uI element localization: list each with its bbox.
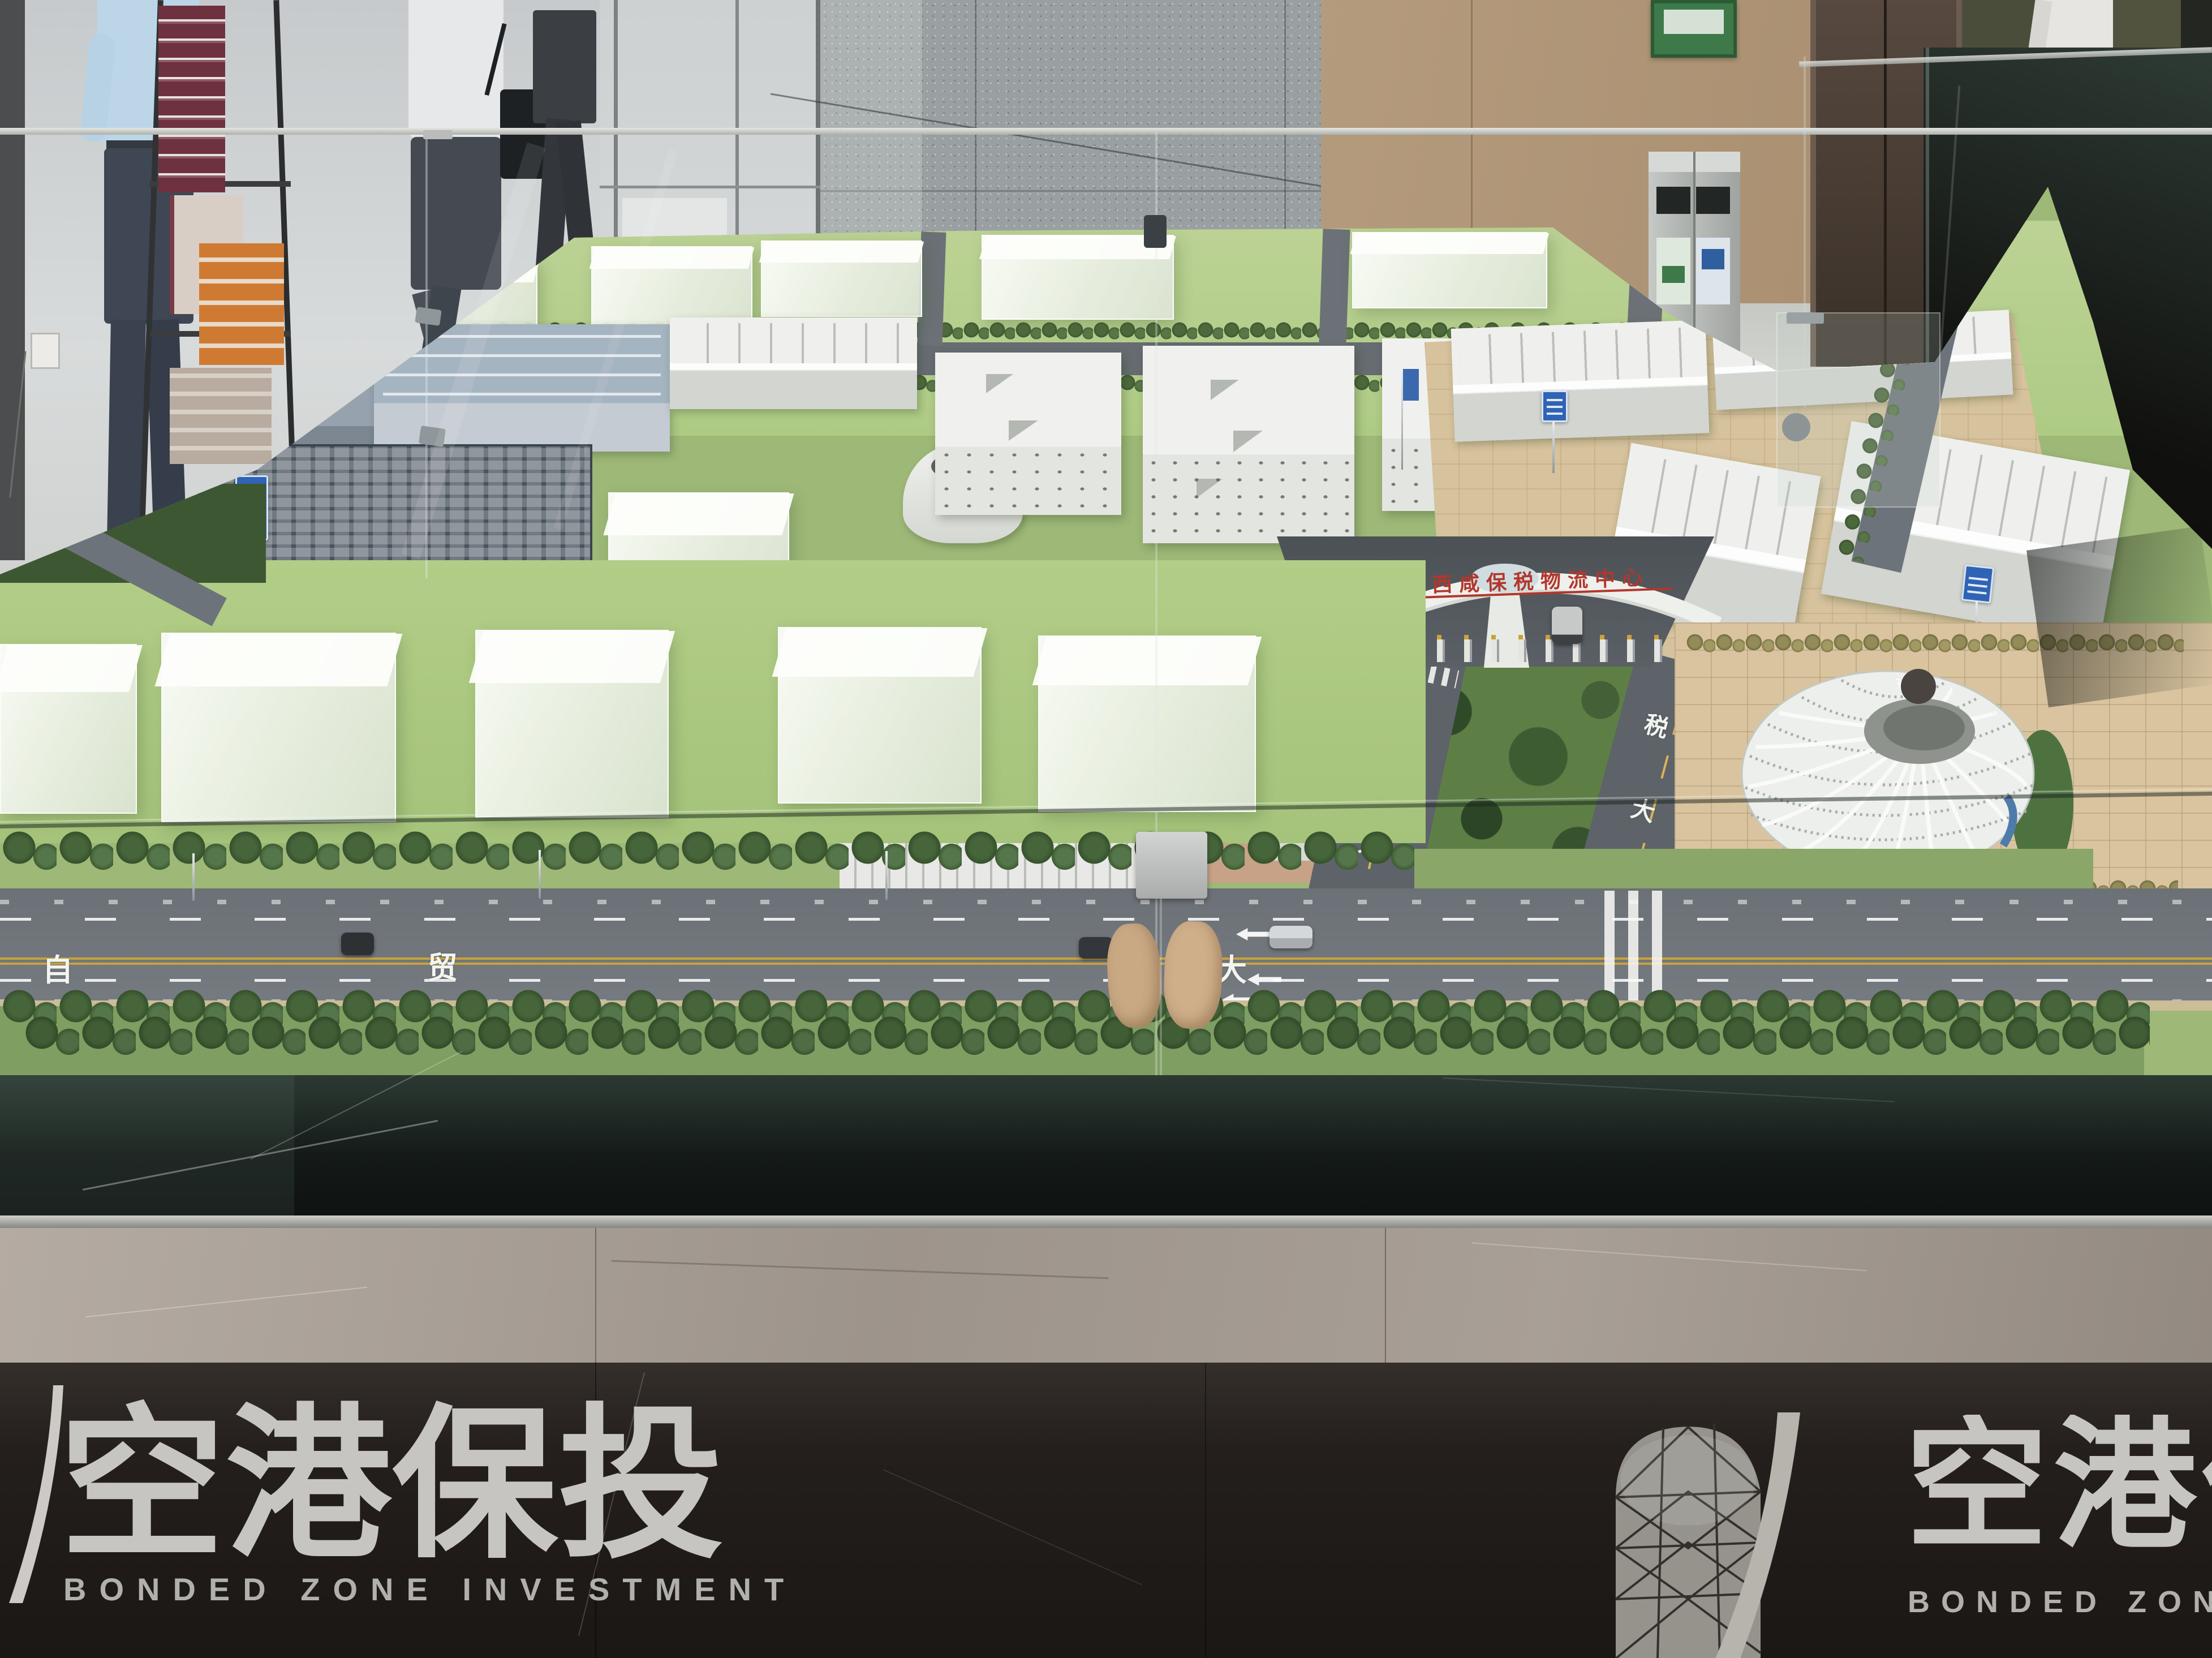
window-dots	[1143, 454, 1354, 543]
bin-opening	[1656, 187, 1690, 214]
table-edge-metal	[0, 1215, 2212, 1229]
person-shirt	[408, 0, 503, 143]
pillar-joint	[975, 0, 976, 243]
pillar-joint	[1284, 0, 1286, 243]
frosted-box	[591, 246, 752, 325]
elevator-seam	[1884, 0, 1887, 367]
tree-row-mid	[0, 825, 1414, 893]
marble-seam	[595, 1228, 596, 1364]
bin-label-blue	[1696, 238, 1730, 304]
glass-shadow-band	[0, 1075, 2212, 1221]
frosted-box	[475, 630, 669, 818]
warehouse-white	[670, 317, 917, 409]
logo-en-right-clip: BONDED ZONE INVESTMENT	[1908, 1584, 2212, 1624]
road-sign-blue	[1961, 564, 1994, 603]
street-light	[539, 850, 541, 899]
pillar-sheen	[820, 0, 922, 243]
logo-cn-left: 空港保投	[59, 1402, 725, 1567]
rack-brochures-maroon	[158, 6, 225, 192]
logo-cn-right-clip: 空港保	[1905, 1415, 2212, 1584]
case-front: 空港保投 BONDED ZONE INVESTMENT 空港保 BON	[0, 1075, 2212, 1658]
person-hips	[411, 137, 501, 290]
logo-en-right: BONDED ZONE INVESTMENT	[1908, 1584, 2212, 1620]
tree-row-front	[23, 1010, 2150, 1084]
bin-opening	[1696, 187, 1730, 214]
frosted-box	[1352, 232, 1547, 308]
band-glow	[0, 1075, 294, 1221]
roof-notch	[986, 374, 1013, 393]
green-wall-sign	[1651, 0, 1737, 58]
rack-brochures-orange	[199, 243, 284, 365]
frosted-box	[0, 644, 137, 814]
logo-en-left: BONDED ZONE INVESTMENT	[63, 1571, 797, 1608]
frosted-box	[778, 627, 982, 804]
reflection-streak	[1443, 1077, 1895, 1102]
rack-brochures-lower	[170, 368, 272, 464]
frosted-box	[1038, 635, 1256, 812]
frosted-box	[982, 235, 1174, 320]
frosted-box	[161, 633, 396, 822]
window-dots	[935, 446, 1121, 515]
car-silver	[1269, 926, 1312, 948]
car-dark	[341, 933, 374, 955]
frosted-box	[761, 240, 922, 317]
blue-flag	[1403, 369, 1419, 401]
white-block	[935, 353, 1121, 515]
green-verge	[1414, 849, 2093, 894]
bin-label-mark	[1662, 266, 1685, 283]
road-label-char: 大	[1628, 789, 1659, 829]
roof-notch	[1211, 380, 1239, 400]
roof-notch	[1233, 431, 1263, 452]
road-label-char: 贸	[427, 943, 458, 987]
marble-vein	[611, 1260, 1109, 1279]
marble-vein-light	[1471, 1243, 1866, 1272]
lane-arrow	[1236, 928, 1270, 940]
road-sign-blue	[1542, 390, 1568, 422]
atrium-transom	[600, 186, 826, 188]
road-text-specks	[0, 900, 2212, 904]
umbrella	[1901, 669, 1936, 704]
lobby-photo: 保 税 大 道 税 大 道 陕西西咸保税物流中心	[0, 0, 2212, 1658]
white-block	[1143, 346, 1354, 543]
base-seam	[1205, 1363, 1206, 1658]
lane-dashes	[0, 979, 2212, 982]
marble-vein-light	[85, 1287, 367, 1317]
logo-cn-right: 空港保	[1905, 1415, 2212, 1557]
sign-pole	[1552, 422, 1555, 473]
marble-band	[0, 1228, 2212, 1364]
bin-label-mark	[1702, 249, 1724, 269]
truck-gray	[1552, 607, 1582, 644]
granite-pillar	[820, 0, 1321, 243]
person-torso	[533, 10, 596, 123]
road-label-char: 税	[1641, 705, 1672, 745]
roof-notch	[1009, 420, 1038, 441]
street-light	[885, 851, 888, 900]
car-dark	[1079, 937, 1113, 959]
warehouse-white	[1451, 320, 1710, 442]
marble-seam	[1385, 1228, 1386, 1364]
elevator-frame	[1810, 0, 1816, 367]
cross-street	[1319, 229, 1350, 346]
base-scratch	[883, 1469, 1142, 1585]
street-light	[192, 853, 195, 901]
logo-mesh-dome	[1578, 1412, 1850, 1658]
base-panel: 空港保投 BONDED ZONE INVESTMENT 空港保 BON	[0, 1363, 2212, 1658]
lane-dashes	[0, 918, 2212, 921]
